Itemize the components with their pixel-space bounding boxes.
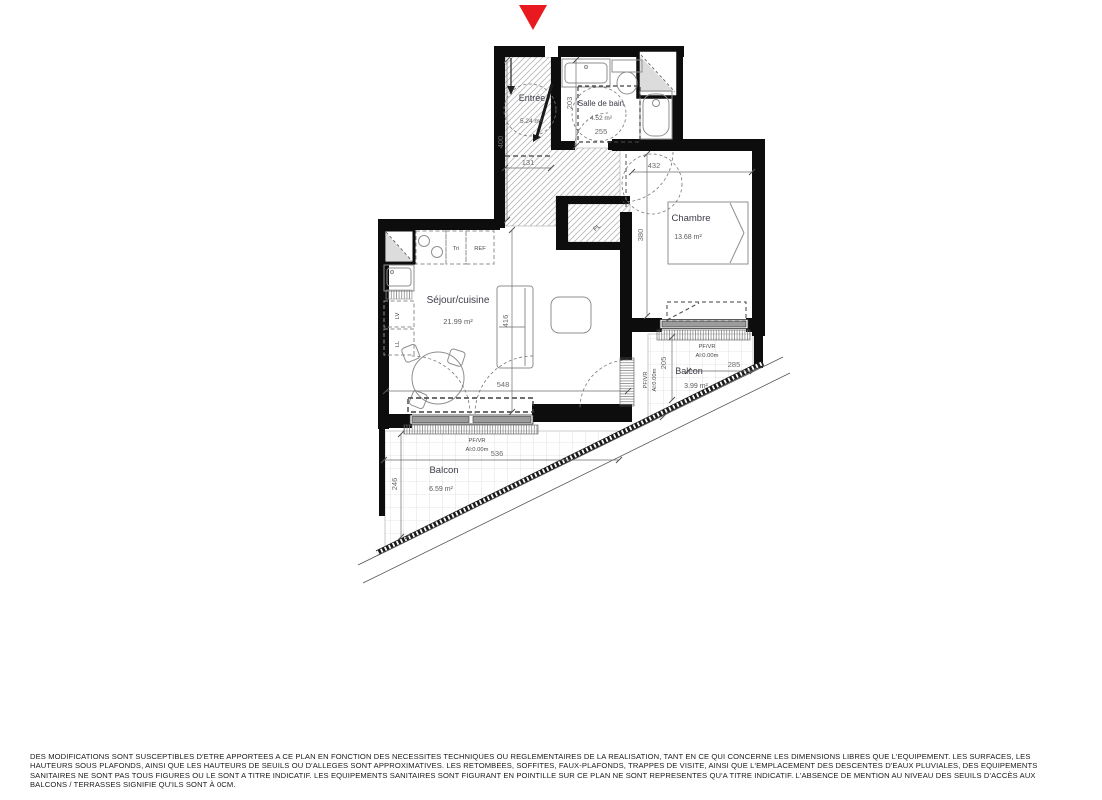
dim-400: 400 xyxy=(496,136,505,149)
label-tri: Tri xyxy=(453,246,460,252)
dim-255: 255 xyxy=(595,127,608,136)
disclaimer-line-4: BALCONS / TERRASSES SIGNIFIE QU'ILS SONT… xyxy=(30,780,1080,789)
dim-131: 131 xyxy=(522,158,535,167)
disclaimer-line-2: HAUTEURS SOUS PLAFONDS, AINSI QUE LES HA… xyxy=(30,761,1080,770)
room-label-balcon1: Balcon xyxy=(675,366,703,376)
room-label-sejour: Séjour/cuisine xyxy=(427,295,490,306)
bed xyxy=(668,202,748,264)
label-pfvr-sejour: PF/VR xyxy=(643,371,649,388)
label-ref: REF xyxy=(474,246,486,252)
dim-246: 246 xyxy=(390,478,399,491)
area-sdb: 4.52 m² xyxy=(590,115,613,122)
drainer xyxy=(386,290,412,299)
sill-hatch-balcony-door xyxy=(620,358,634,406)
dim-285: 285 xyxy=(728,360,741,369)
dim-203: 203 xyxy=(565,97,574,110)
area-chambre: 13.68 m² xyxy=(674,234,702,241)
disclaimer-line-1: DES MODIFICATIONS SONT SUSCEPTIBLES D'ET… xyxy=(30,752,1080,761)
label-lv: LV xyxy=(395,313,401,320)
hob xyxy=(416,231,446,264)
dim-380: 380 xyxy=(636,229,645,242)
area-balcon2: 6.59 m² xyxy=(429,486,453,493)
label-ll: LL xyxy=(395,340,401,347)
label-pfvr-balcon2: PF/VR xyxy=(468,438,485,444)
disclaimer: DES MODIFICATIONS SONT SUSCEPTIBLES D'ET… xyxy=(30,752,1080,789)
label-pfvr-chambre: PF/VR xyxy=(698,344,715,350)
label-al-chambre: Al:0.00m xyxy=(696,353,719,359)
bedroom-door-swing xyxy=(623,152,673,202)
room-label-sdb: Salle de bain xyxy=(578,99,624,108)
sill-hatch-sejour xyxy=(404,425,538,434)
kitchen-corner-unit xyxy=(384,230,414,263)
room-label-chambre: Chambre xyxy=(671,213,710,224)
room-label-entree: Entrée xyxy=(519,93,546,103)
area-balcon1: 3.99 m² xyxy=(684,383,708,390)
shower xyxy=(638,50,678,97)
label-al-sejour: Al:0.00m xyxy=(652,368,658,391)
dim-536: 536 xyxy=(491,449,504,458)
dim-416: 416 xyxy=(501,315,510,328)
red-arrow-marker xyxy=(519,5,547,30)
area-entree: 5.24 m² xyxy=(520,118,543,125)
floor-plan-page: Entrée 5.24 m² Salle de bain 4.52 m² Cha… xyxy=(0,0,1102,800)
dining-table xyxy=(412,352,464,404)
coffee-table xyxy=(551,297,591,333)
dim-205: 205 xyxy=(659,357,668,370)
dim-432: 432 xyxy=(648,161,661,170)
area-sejour: 21.99 m² xyxy=(443,317,473,326)
floor-plan-svg: Entrée 5.24 m² Salle de bain 4.52 m² Cha… xyxy=(0,0,1102,800)
label-al-balcon2: Al:0.00m xyxy=(466,447,489,453)
entrance-door-gap xyxy=(545,46,558,57)
disclaimer-line-3: SANITAIRES NE SONT PAS TOUS FIGURES OU L… xyxy=(30,771,1080,780)
dim-548: 548 xyxy=(497,380,510,389)
room-label-balcon2: Balcon xyxy=(429,465,458,476)
